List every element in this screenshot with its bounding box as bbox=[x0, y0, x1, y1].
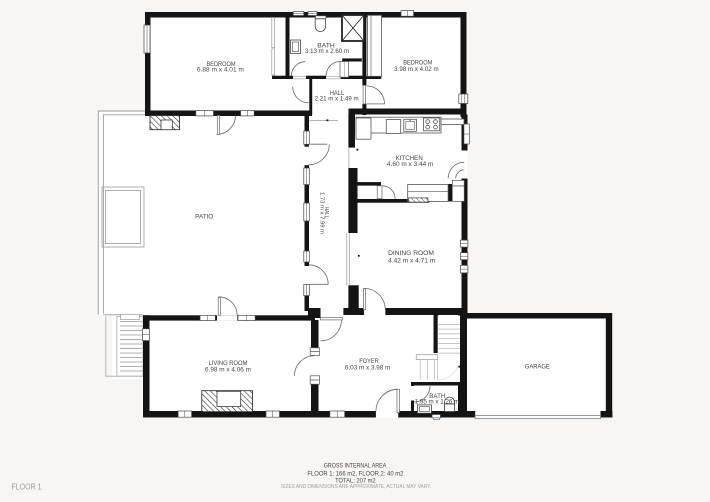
svg-text:3.98 m x 4.02 m: 3.98 m x 4.02 m bbox=[394, 66, 439, 73]
svg-text:4.42 m x 4.71 m: 4.42 m x 4.71 m bbox=[388, 257, 435, 264]
svg-text:GROSS INTERNAL AREA: GROSS INTERNAL AREA bbox=[324, 462, 387, 469]
svg-text:GARAGE: GARAGE bbox=[525, 364, 550, 371]
svg-text:6.88 m x 4.01 m: 6.88 m x 4.01 m bbox=[197, 66, 244, 73]
svg-text:2.21 m x 1.49 m: 2.21 m x 1.49 m bbox=[315, 96, 359, 103]
svg-text:6.98 m x 4.06 m: 6.98 m x 4.06 m bbox=[205, 367, 251, 374]
svg-text:1.73 m x 7.99 m: 1.73 m x 7.99 m bbox=[319, 192, 325, 234]
svg-text:FLOOR 1: FLOOR 1 bbox=[12, 483, 42, 492]
svg-text:PATIO: PATIO bbox=[195, 214, 213, 221]
svg-text:6.03 m x 3.98 m: 6.03 m x 3.98 m bbox=[345, 365, 391, 372]
svg-text:1.95 m x 1.26 m: 1.95 m x 1.26 m bbox=[415, 399, 460, 406]
svg-text:4.60 m x 3.44 m: 4.60 m x 3.44 m bbox=[387, 161, 434, 168]
svg-text:SIZES AND DIMENSIONS ARE APPRO: SIZES AND DIMENSIONS ARE APPROXIMATE, AC… bbox=[281, 484, 431, 490]
svg-text:DINING ROOM: DINING ROOM bbox=[388, 250, 434, 257]
svg-text:3.13 m x 2.60 m: 3.13 m x 2.60 m bbox=[305, 48, 349, 55]
